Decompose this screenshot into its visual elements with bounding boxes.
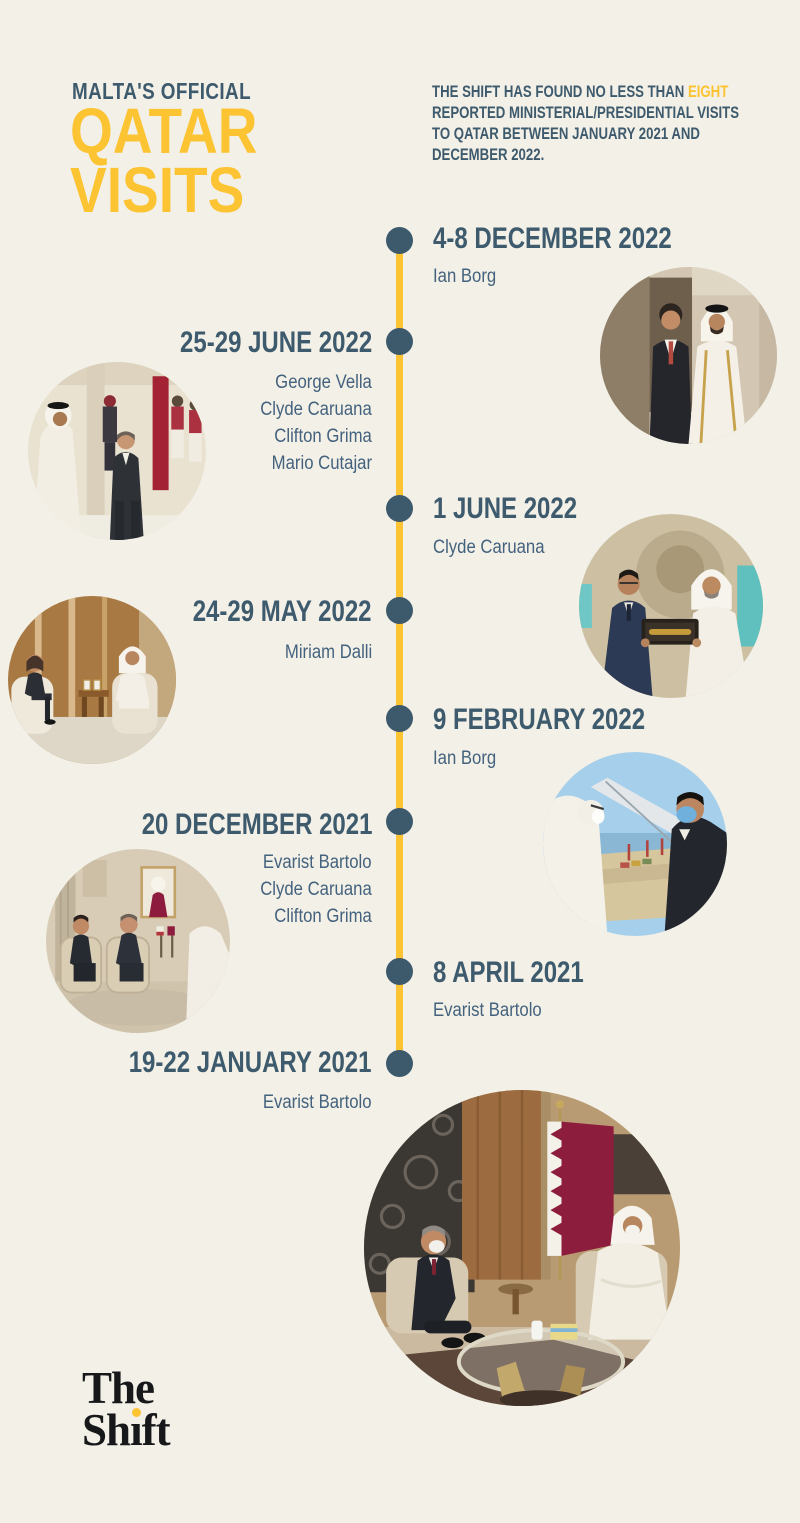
intro-line1: THE SHIFT HAS FOUND NO LESS THAN EIGHT <box>432 82 739 103</box>
timeline-dot <box>386 1050 413 1077</box>
entry-date: 20 DECEMBER 2021 <box>141 808 372 842</box>
entry-name: Miriam Dalli <box>285 642 372 664</box>
photo-20-december-2021 <box>46 849 230 1033</box>
timeline-dot <box>386 705 413 732</box>
intro-line2: REPORTED MINISTERIAL/PRESIDENTIAL VISITS <box>432 103 739 124</box>
entry-name: George Vella <box>275 372 372 394</box>
photo-24-29-may-2022 <box>8 596 176 764</box>
entry-date: 4-8 DECEMBER 2022 <box>433 222 672 256</box>
entry-name: Clifton Grima <box>274 426 372 448</box>
photo-9-february-2022 <box>543 752 727 936</box>
entry-name: Clyde Caruana <box>260 879 372 901</box>
photo-25-29-june-2022 <box>28 362 206 540</box>
entry-date: 25-29 JUNE 2022 <box>180 326 372 360</box>
page-title-line1: QATAR <box>70 102 258 161</box>
entry-name: Clifton Grima <box>274 906 372 928</box>
logo-i-yellow-dot: ı <box>130 1405 142 1455</box>
logo-line1: The <box>82 1368 170 1410</box>
entry-name: Evarist Bartolo <box>263 852 372 874</box>
entry-name: Ian Borg <box>433 266 496 288</box>
page-title: QATAR VISITS <box>70 102 258 220</box>
entry-name: Mario Cutajar <box>272 453 372 475</box>
intro-line4: DECEMBER 2022. <box>432 145 739 166</box>
timeline-dot <box>386 597 413 624</box>
infographic-canvas: MALTA'S OFFICIAL QATAR VISITS THE SHIFT … <box>0 0 800 1523</box>
timeline-dot <box>386 958 413 985</box>
entry-date: 8 APRIL 2021 <box>433 956 584 990</box>
timeline-dot <box>386 495 413 522</box>
timeline-dot <box>386 227 413 254</box>
entry-date: 24-29 MAY 2022 <box>193 595 372 629</box>
intro-highlight: EIGHT <box>688 83 728 101</box>
entry-name: Clyde Caruana <box>433 537 545 559</box>
entry-date: 1 JUNE 2022 <box>433 492 577 526</box>
intro-line3: TO QATAR BETWEEN JANUARY 2021 AND <box>432 124 739 145</box>
entry-name: Ian Borg <box>433 748 496 770</box>
the-shift-logo: The Shıft <box>82 1368 170 1452</box>
timeline-dot <box>386 328 413 355</box>
photo-19-22-january-2021 <box>364 1090 680 1406</box>
photo-1-june-2022 <box>579 514 763 698</box>
entry-date: 19-22 JANUARY 2021 <box>129 1046 372 1080</box>
photo-4-8-december-2022 <box>600 267 777 444</box>
page-title-line2: VISITS <box>70 161 258 220</box>
entry-name: Clyde Caruana <box>260 399 372 421</box>
logo-line2: Shıft <box>82 1410 170 1452</box>
timeline-line <box>396 240 403 1064</box>
entry-name: Evarist Bartolo <box>263 1092 372 1114</box>
entry-date: 9 FEBRUARY 2022 <box>433 703 645 737</box>
timeline-dot <box>386 808 413 835</box>
intro-paragraph: THE SHIFT HAS FOUND NO LESS THAN EIGHT R… <box>432 82 739 166</box>
entry-name: Evarist Bartolo <box>433 1000 542 1022</box>
